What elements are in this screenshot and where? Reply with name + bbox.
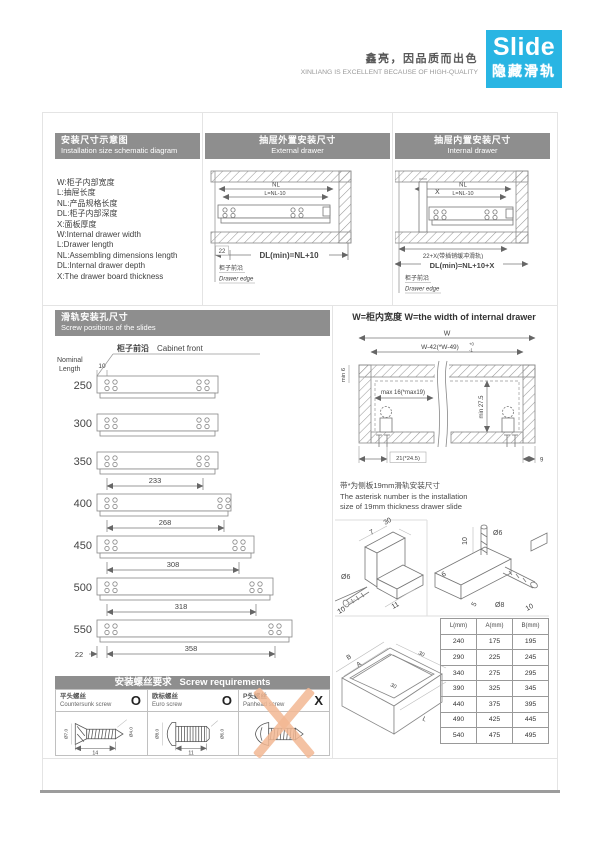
def-line: NL:产品规格长度 [57, 199, 202, 209]
span-318: 318 [175, 602, 188, 611]
def-line: X:面板厚度 [57, 220, 202, 230]
brand-tagline: 鑫亮，因品质而出色 XINLIANG IS EXCELLENT BECAUSE … [178, 50, 478, 76]
table-row: 440375395 [441, 696, 549, 712]
section-header-schematic: 安装尺寸示意图 Installation size schematic diag… [55, 133, 200, 159]
cabinet-front-cn: 柜子前沿 [116, 343, 149, 353]
section-header-internal: 抽屉内置安装尺寸 Internal drawer [395, 133, 550, 159]
screw-requirements-table: 平头螺丝 Countersunk screw O Ø7.0 Ø4.0 [55, 689, 330, 756]
iso-right-sketch [435, 525, 547, 599]
iso-drill-details: 30 7 Ø6 10 11 10 Ø6 6 5 Ø8 10 [335, 515, 549, 617]
frame-left [42, 112, 43, 790]
euro-cn: 欧标螺丝 [152, 693, 182, 701]
def-line: X:The drawer board thickness [57, 272, 202, 282]
length-300: 300 [74, 418, 92, 430]
table-row: 540475495 [441, 728, 549, 744]
screw-name-row: 欧标螺丝 Euro screw O [148, 690, 238, 712]
edge-cn-label: 柜子前沿 [219, 264, 243, 272]
frame-top [42, 112, 558, 113]
dim-max16-label: max 16(*max19) [381, 390, 425, 396]
dim-w42-label: W-42(*W-49) [421, 344, 459, 351]
iso-left-sketch [335, 532, 423, 608]
dim-l-label: L=NL-10 [264, 191, 285, 197]
box-dim-l: L [421, 716, 428, 724]
countersunk-en: Countersunk screw [60, 701, 111, 709]
section-header-external: 抽屉外置安装尺寸 External drawer [205, 133, 390, 159]
edge-cn-label: 柜子前沿 [405, 274, 429, 282]
schematic-title-cn: 安装尺寸示意图 [61, 135, 194, 146]
dim-head-dia: Ø7.0 [63, 728, 69, 739]
table-row: 290225245 [441, 650, 549, 666]
dim-nl-label: NL [459, 183, 467, 189]
span-268: 268 [159, 518, 172, 527]
iso-right-dia8: Ø8 [495, 602, 504, 609]
iso-left-dim-10: 10 [337, 606, 347, 616]
logo-text: Slide [486, 33, 562, 62]
dim-min6-label: min 6 [341, 368, 347, 382]
box-dim-b: B [345, 653, 352, 661]
iso-right-dim-10b: 10 [525, 603, 535, 613]
note-cn: 带*为侧板19mm滑轨安装尺寸 [340, 481, 550, 492]
tolerance-upper: +0 [469, 342, 474, 347]
width-installation-diagram: W W-42(*W-49) +0 -1 min 6 max 16(*max19)… [337, 328, 550, 478]
table-row: 390325345 [441, 681, 549, 697]
positions-title-en: Screw positions of the slides [61, 323, 324, 332]
iso-left-dia6: Ø6 [341, 574, 350, 581]
external-title-en: External drawer [211, 146, 384, 155]
length-400: 400 [74, 498, 92, 510]
def-line: L:Drawer length [57, 240, 202, 250]
table-row: 340275295 [441, 665, 549, 681]
slide-rail [218, 205, 330, 223]
def-line: W:Internal drawer width [57, 230, 202, 240]
internal-title-cn: 抽屉内置安装尺寸 [401, 135, 544, 146]
dim-length: 11 [188, 750, 194, 754]
size-table-header: L(mm) A(mm) B(mm) [441, 619, 549, 635]
col-a: A(mm) [477, 619, 513, 635]
external-drawer-diagram: NL L=NL-10 22 DL(min)=NL+10 柜子前沿 Drawer … [205, 163, 390, 303]
dim-dl-label: DL(min)=NL+10+X [430, 261, 495, 270]
dim-shaft-dia: Ø6.0 [220, 728, 226, 739]
iso-left-dim-30: 30 [383, 517, 393, 527]
col-l: L(mm) [441, 619, 477, 635]
table-row: 240175195 [441, 634, 549, 650]
section-header-screws: 安装螺丝要求 Screw requirements [55, 676, 330, 689]
asterisk-note: 带*为侧板19mm滑轨安装尺寸 The asterisk number is t… [340, 481, 550, 513]
length-500: 500 [74, 582, 92, 594]
schematic-title-en: Installation size schematic diagram [61, 146, 194, 155]
not-allowed-mark: X [314, 693, 323, 708]
edge-en-label: Drawer edge [219, 277, 254, 283]
dim-shaft-dia: Ø4.0 [128, 726, 134, 737]
length-550: 550 [74, 624, 92, 636]
def-line: W:柜子内部宽度 [57, 178, 202, 188]
divider-mid [332, 305, 333, 758]
def-line: DL:柜子内部深度 [57, 209, 202, 219]
internal-title-en: Internal drawer [401, 146, 544, 155]
nominal-length-label2: Length [59, 366, 81, 373]
drawer-box-isometric: B A 30 30 L [336, 634, 448, 744]
countersunk-cn: 平头螺丝 [60, 693, 111, 701]
allowed-mark: O [222, 693, 232, 708]
iso-right-dia6: Ø6 [493, 530, 502, 537]
screw-positions-diagram: 柜子前沿 Cabinet front Nominal Length 10 [55, 338, 330, 670]
dimension-definitions: W:柜子内部宽度 L:抽屉长度 NL:产品规格长度 DL:柜子内部深度 X:面板… [57, 178, 202, 282]
iso-right-dim-5: 5 [471, 601, 479, 608]
span-358: 358 [185, 644, 198, 653]
allowed-mark: O [131, 693, 141, 708]
length-450: 450 [74, 540, 92, 552]
euro-screw-drawing: Ø8.0 Ø6.0 11 [150, 713, 236, 755]
cabinet-front-leader [97, 354, 260, 376]
nominal-length-label1: Nominal [57, 357, 83, 364]
dim-21-label: 21(*24.5) [396, 456, 420, 462]
screw-col-panhead: P头螺丝 Panhead screw X [238, 690, 329, 755]
dim-10-label: 10 [98, 363, 106, 370]
dim-min275-label: min 27.5 [479, 395, 485, 419]
cabinet-front-en: Cabinet front [157, 344, 204, 353]
section-header-positions: 滑轨安装孔尺寸 Screw positions of the slides [55, 310, 330, 336]
span-233: 233 [149, 476, 162, 485]
tagline-chinese: 鑫亮，因品质而出色 [178, 50, 478, 66]
size-table: L(mm) A(mm) B(mm) 240175195 290225245 34… [440, 618, 549, 744]
table-row: 490425445 [441, 712, 549, 728]
screws-title-en: Screw requirements [180, 677, 271, 688]
dim-9-label: 9 [540, 458, 544, 464]
dim-x-label: X [435, 189, 440, 196]
drawer-board [419, 182, 427, 232]
def-line: DL:Internal drawer depth [57, 261, 202, 271]
positions-title-cn: 滑轨安装孔尺寸 [61, 312, 324, 323]
note-en2: size of 19mm thickness drawer slide [340, 502, 550, 513]
dim-length: 14 [92, 750, 98, 754]
nominal-length-values: 250 300 350 400 450 500 550 [74, 380, 92, 636]
euro-en: Euro screw [152, 701, 182, 709]
screws-title-cn: 安装螺丝要求 [115, 677, 172, 688]
divider-col2 [392, 112, 393, 305]
dim-front-label: 22 [219, 249, 226, 255]
divider-row1 [42, 305, 558, 306]
internal-drawer-diagram: NL L=NL-10 X 22+X(带插销缓冲滑轨) DL(min)=NL+10… [395, 163, 550, 303]
countersunk-screw-drawing: Ø7.0 Ø4.0 14 [59, 713, 145, 755]
logo-subtext: 隐藏滑轨 [486, 62, 562, 81]
dim-22-label: 22 [75, 650, 83, 659]
divider-col1 [202, 112, 203, 305]
span-308: 308 [167, 560, 180, 569]
frame-right [557, 112, 558, 790]
slide-rows [97, 376, 292, 642]
screw-name-row: 平头螺丝 Countersunk screw O [56, 690, 147, 712]
frame-bottom-inner [42, 758, 558, 759]
dim-nl-label: NL [272, 183, 280, 189]
screw-col-countersunk: 平头螺丝 Countersunk screw O Ø7.0 Ø4.0 [56, 690, 147, 755]
tagline-english: XINLIANG IS EXCELLENT BECAUSE OF HIGH-QU… [178, 69, 478, 76]
dim-front-label: 22+X(带插销缓冲滑轨) [423, 252, 483, 260]
length-350: 350 [74, 456, 92, 468]
length-250: 250 [74, 380, 92, 392]
brand-logo: Slide 隐藏滑轨 [486, 30, 562, 88]
external-title-cn: 抽屉外置安装尺寸 [211, 135, 384, 146]
edge-en-label: Drawer edge [405, 287, 440, 293]
footer-rule [40, 790, 560, 793]
width-section-title: W=柜内宽度 W=the width of internal drawer [338, 310, 550, 323]
col-b: B(mm) [513, 619, 549, 635]
slide-rail [429, 207, 513, 225]
screw-col-euro: 欧标螺丝 Euro screw O Ø8.0 Ø6.0 [147, 690, 238, 755]
dim-l-label: L=NL-10 [452, 191, 473, 197]
def-line: NL:Assembling dimensions length [57, 251, 202, 261]
iso-right-dim-10: 10 [462, 537, 469, 545]
dim-dl-label: DL(min)=NL+10 [259, 251, 319, 260]
note-en1: The asterisk number is the installation [340, 492, 550, 503]
dim-head-dia: Ø8.0 [155, 728, 161, 739]
def-line: L:抽屉长度 [57, 188, 202, 198]
dim-w-label: W [444, 331, 451, 338]
